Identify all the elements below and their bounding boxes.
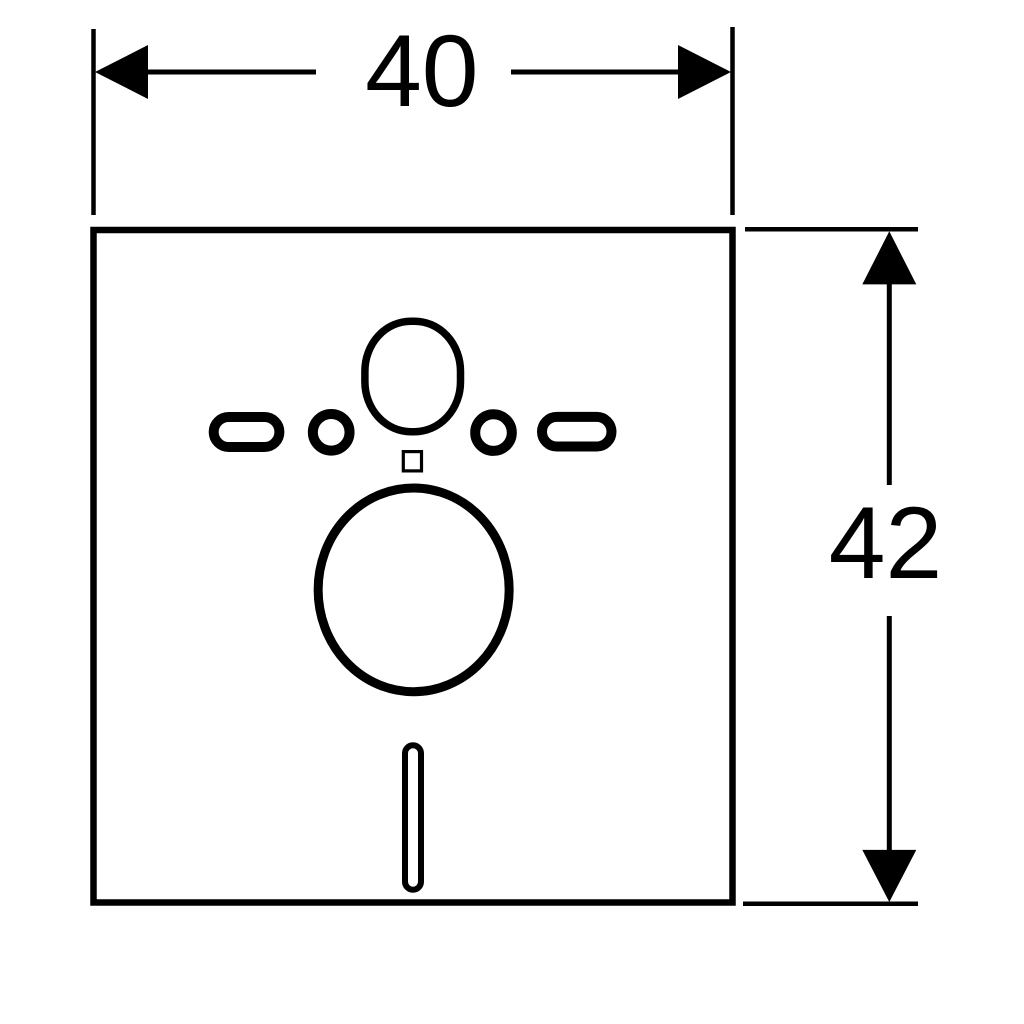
svg-text:42: 42 (829, 486, 942, 600)
svg-text:40: 40 (365, 14, 478, 128)
